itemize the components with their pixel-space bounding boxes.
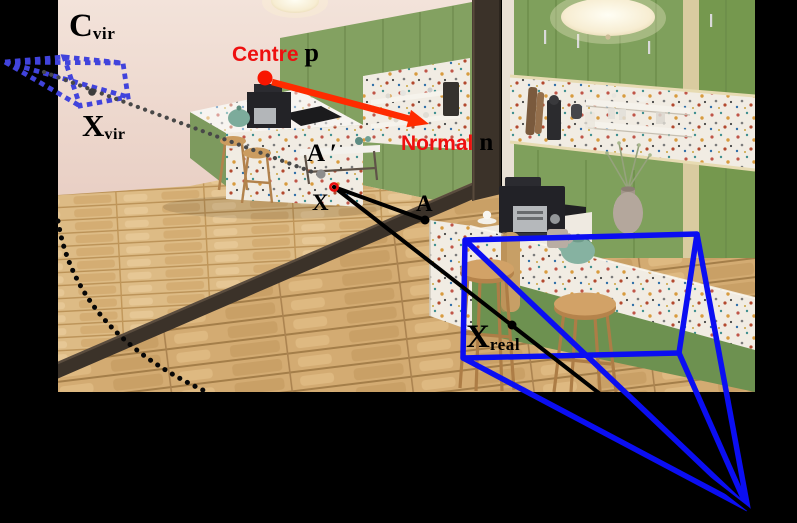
- a-prime-text: A ′: [307, 140, 337, 167]
- c-vir-subscript: vir: [93, 24, 115, 43]
- centre-symbol: p: [305, 38, 319, 67]
- label-x-vir: Xvir: [82, 110, 126, 143]
- x-vir-symbol: X: [82, 108, 104, 143]
- label-c-vir: Cvir: [69, 10, 115, 43]
- a-text: A: [416, 191, 433, 216]
- label-a: A: [416, 192, 433, 215]
- virtual-frustum-edge: [5, 57, 64, 62]
- figure-canvas: Cvir Xvir Centrep Normaln A ′ X A Xreal: [0, 0, 797, 523]
- kitchen-photo: [58, 0, 755, 392]
- c-vir-symbol: C: [69, 8, 93, 44]
- kitchen-scene: [58, 0, 755, 392]
- x-vir-subscript: vir: [104, 126, 125, 143]
- centre-word: Centre: [232, 43, 299, 66]
- normal-word: Normal: [401, 132, 473, 155]
- label-centre-p: Centrep: [232, 40, 319, 66]
- coffee-machine: [499, 177, 565, 238]
- x-real-subscript: real: [490, 335, 520, 354]
- x-text: X: [312, 190, 329, 215]
- label-normal-n: Normaln: [401, 130, 493, 155]
- x-real-symbol: X: [466, 319, 490, 355]
- label-a-prime: A ′: [307, 141, 337, 166]
- normal-symbol: n: [479, 129, 493, 156]
- label-x-real: Xreal: [466, 321, 520, 354]
- label-x: X: [312, 191, 329, 214]
